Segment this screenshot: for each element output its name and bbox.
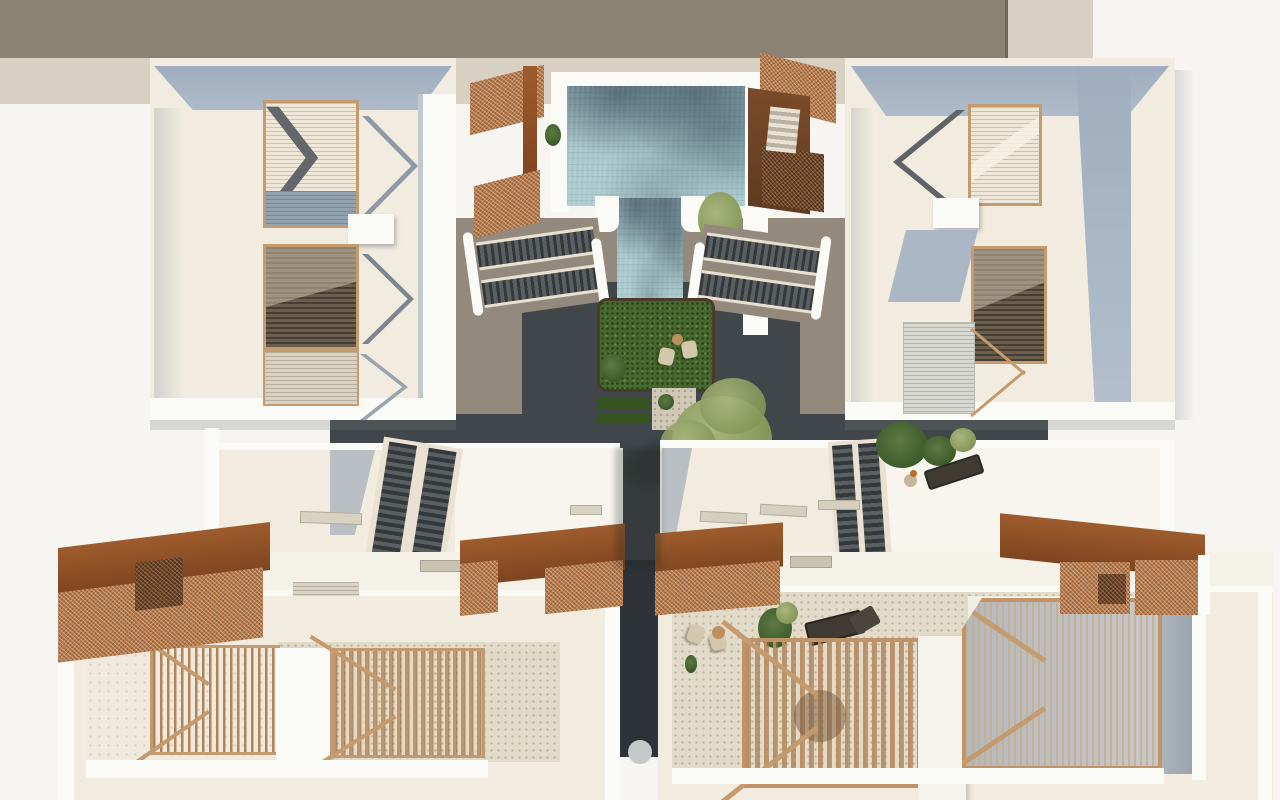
patio-parapet xyxy=(86,760,488,778)
corten-pergola-mesh-dark xyxy=(135,557,183,611)
neighbor-roof-end xyxy=(1005,0,1093,58)
louver-highlight xyxy=(974,249,1044,361)
pool-water xyxy=(567,86,745,206)
bottom-parapet xyxy=(845,402,1175,420)
pergola-parapet xyxy=(1198,555,1210,615)
right-parapet xyxy=(1192,600,1206,780)
skylight-glass xyxy=(266,191,356,225)
side-table xyxy=(672,334,683,345)
louver-highlight xyxy=(266,247,356,347)
terrace-table-accent xyxy=(910,470,917,477)
right-parapet xyxy=(418,94,456,420)
lawn-shrub xyxy=(600,354,626,382)
aerial-render-stage xyxy=(0,0,1280,800)
patio-plant xyxy=(776,602,798,624)
patio-divider xyxy=(276,648,330,760)
hedge-strip xyxy=(597,413,649,423)
skylight-slit xyxy=(293,582,359,596)
gap-walkway-step xyxy=(628,740,652,764)
roof-skylight-louver-dark xyxy=(971,246,1047,364)
terrace-plant xyxy=(876,422,928,468)
block-side-shadow xyxy=(1175,70,1195,420)
louver-highlight xyxy=(971,107,1039,203)
corten-pergola-mesh xyxy=(545,560,623,614)
parapet-shadow-right xyxy=(1071,66,1131,410)
roof-skylight-louver-gray xyxy=(903,322,975,414)
timber-pergola-shadowed xyxy=(962,598,1162,770)
tree-branch-shadow xyxy=(615,448,661,568)
wall-shade xyxy=(154,108,184,408)
timber-pergola xyxy=(742,638,922,788)
gap-walkway xyxy=(620,560,658,757)
stair-flight xyxy=(703,232,820,276)
patio-parapet xyxy=(672,768,1164,784)
block-drop-shadow xyxy=(150,420,456,430)
wall-shade xyxy=(851,108,875,408)
roof-notch xyxy=(348,214,394,244)
terrace-plant xyxy=(950,428,976,452)
stair-flight xyxy=(481,264,602,308)
stair-flight xyxy=(698,270,815,314)
roof-shadow-panel xyxy=(888,230,978,302)
skylight-shadow-arrow xyxy=(362,254,414,344)
outer-right-wall xyxy=(1258,588,1272,800)
timber-slat-screen xyxy=(330,648,485,758)
skylight-slit xyxy=(570,505,602,515)
pool-plant xyxy=(545,124,561,146)
roof-skylight-louver xyxy=(263,100,359,228)
roof-skylight-louver-dark xyxy=(263,244,359,350)
gravel-plant xyxy=(658,394,674,410)
skylight-slit xyxy=(790,556,832,568)
corten-pergola-mesh-dark xyxy=(1098,574,1126,604)
corten-pergola-mesh xyxy=(1135,560,1205,615)
roof-skylight-louver xyxy=(968,104,1042,206)
skylight-slit xyxy=(300,511,362,525)
patio-table xyxy=(712,626,725,639)
skylight-slit xyxy=(420,560,462,572)
hedge-strip xyxy=(597,398,649,409)
pergola-table-ghost xyxy=(794,690,846,742)
skylight-shadow-arrow xyxy=(362,116,418,216)
timber-slat-screen xyxy=(150,645,280,755)
neighbor-roof-band xyxy=(0,0,1005,58)
roof-notch xyxy=(933,198,979,228)
pool-water-tongue xyxy=(617,198,683,302)
roof-skylight-louver-small xyxy=(263,350,359,406)
patio-plant-sprig xyxy=(685,655,697,673)
lounge-chair xyxy=(681,340,699,359)
corten-screen xyxy=(762,146,824,213)
skylight-slit xyxy=(818,500,860,510)
corten-edge xyxy=(523,66,537,182)
upper-right-block xyxy=(845,58,1175,420)
stairwell-steps xyxy=(766,107,800,154)
corten-pergola-mesh xyxy=(460,560,498,616)
upper-left-block xyxy=(150,58,456,420)
olive-tree-canopy xyxy=(700,378,766,434)
